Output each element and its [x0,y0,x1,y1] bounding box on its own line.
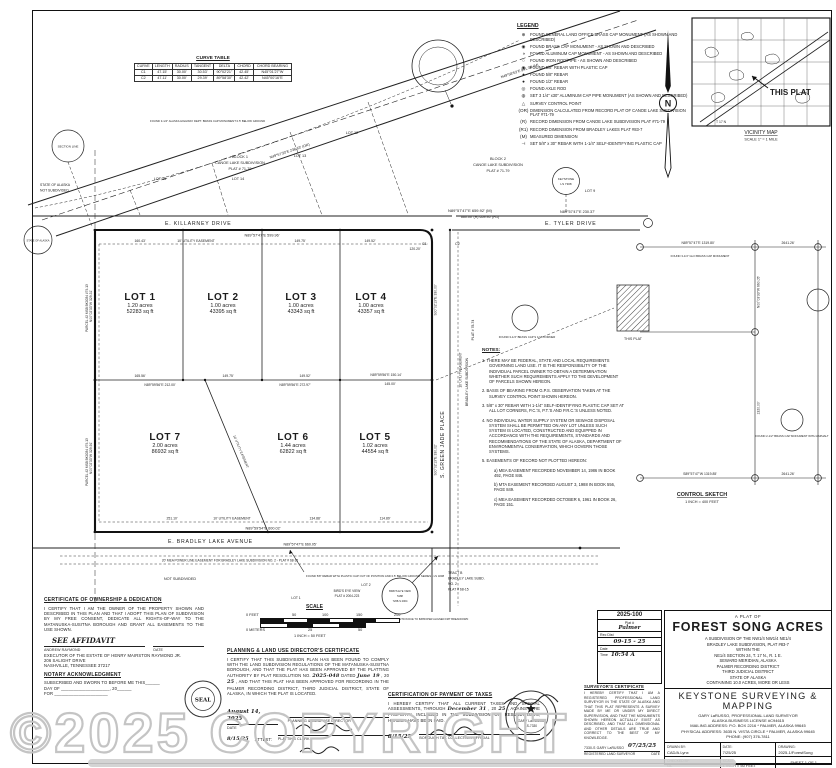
legend-item: ⊣SET 5/8" x 30" REBAR WITH 1-1/4" SELF-I… [517,142,691,147]
easement-top-label: 10' UTILITY EASEMENT [177,239,215,243]
keystone-cap-line2: LS 7308 [560,182,572,186]
control-d3: N00°03'33"W 660.05' [757,276,761,308]
block1-line3: PLAT # 71-79 [228,167,251,171]
dim-m4: N89°59'56"E 150.14' [370,373,402,377]
m-abbrev: (M) [517,135,530,140]
lot-number: LOT 4 [336,292,406,303]
hwy-monument-note: FOUND 3-1/4" ALASKA HIGHWAY DEPT. BRASS … [150,119,265,123]
legend-item: (M)MEASURED DIMENSION [517,135,691,140]
control-d4: S89°57'47"W 1319.85' [683,472,717,476]
curve-cell: 29.39' [191,75,214,81]
rebar58-icon: ● [517,73,530,78]
date-value: 7/25/25 [723,750,736,755]
lot-number: LOT 6 [258,432,328,443]
note-5b: b) MTA EASEMENT RECORDED AUGUST 3, 1988 … [482,482,624,492]
control-point-icon: △ [517,102,530,107]
recording-recdist-value: 09-15 - 25 [598,638,661,646]
ownership-certificate: CERTIFICATE OF OWNERSHIP & DEDICATION I … [44,597,204,697]
lot-3-label: LOT 3 1.00 acres 43343 sq ft [266,292,336,315]
section-line-label: SECTION LINE [58,145,79,149]
firm-name: KEYSTONE SURVEYING & MAPPING [667,691,829,711]
planning-body-4: , AND THAT THIS PLAT HAS BEEN APPROVED F… [227,679,389,696]
dim-b3: 114.89' [380,517,391,521]
legend-item: ●FOUND 1/2" REBAR [517,80,691,85]
legend: LEGEND ⊕FOUND GENERAL LAND OFFICE BRASS … [517,24,691,149]
brass-cap-icon: ◉ [517,45,530,50]
lot-sqft: 44554 sq ft [340,449,410,455]
easement-bottom-label: 10' UTILITY EASEMENT [213,517,251,521]
lot-sqft: 43343 sq ft [266,309,336,315]
legend-item-text: RECORD DIMENSION FROM CANOE LAKE SUBDIVI… [530,120,665,125]
curve-cell: 30.00' [172,75,191,81]
surveyor-certificate: SURVEYOR'S CERTIFICATE I HEREBY CERTIFY … [584,684,660,757]
legend-item-text: SET 3 1/4" x30" ALUMINUM CAP PIPE MONUME… [530,94,687,99]
street-tyler: E. TYLER DRIVE [545,221,596,227]
bradley-sub-vertical: BRADLEY LAKE SUBDIVISION [465,357,469,406]
birdseye-line1: BIRD'S EYE VIEW [334,589,361,593]
dim-m5: 145.00' [384,382,395,386]
axle-rod-icon: ◎ [517,87,530,92]
dim-m3: 149.52' [299,374,310,378]
title-block: A PLAT OF FOREST SONG ACRES A SUBDIVISIO… [664,610,832,765]
scale-feet-100: 100 [322,613,328,617]
note-5: 5. EASEMENTS OF RECORD NOT PLOTTED HEREO… [482,458,624,463]
dim-w2: 149.75' [294,239,305,243]
planning-approval-date: June 19 [357,673,380,679]
dim-m6: N89°59'56"E 212.00' [144,383,176,387]
legend-item-text: MEASURED DIMENSION [530,135,578,140]
dim-left2: N00°02'33"W 329.91' [89,442,93,474]
planning-resolution-no: 2025-048 [312,673,339,679]
planning-body-2: DATED [341,673,357,678]
drawing-label: DRAWING: [778,745,795,749]
lot15-label: LOT 15 [154,177,167,181]
ownership-body: I CERTIFY THAT I AM THE OWNER OF THE PRO… [44,606,204,633]
curve-cell: 47.11' [152,75,172,81]
vicinity-title: VICINITY MAP [744,130,778,136]
be-lot1-label: LOT 1 [291,596,300,600]
lot-7-label: LOT 7 2.00 acres 86932 sq ft [130,432,200,455]
control-m3: FOUND 3-1/4" BRASS CAP S 1/16 CORNER [499,335,556,339]
legend-item: ◎FOUND AXLE ROD [517,87,691,92]
rebar12-icon: ● [517,80,530,85]
scale-feet-200: 200 [394,613,400,617]
legend-item-text: FOUND BRASS CAP MONUMENT - AS SHOWN AND … [530,45,655,50]
drawn-by-label: DRAWN BY: [667,745,686,749]
scale-feet-150: 150 [356,613,362,617]
owner-date-label: DATE [153,648,163,652]
block1-line1: BLOCK 1 [232,155,248,159]
recording-box: 2025-100 Plat # Palmer Rec Dist 09-15 - … [597,610,662,684]
drawing-value: 2025-1/ForestSong [778,750,812,755]
dim-top-r: 660.00' (R) 659.95' (R1) [461,215,499,219]
note-4: 4. NO INDIVIDUAL WATER SUPPLY SYSTEM OR … [482,418,624,455]
state-not-subdivided: NOT SUBDIVIDED [40,189,69,193]
legend-item: (OR)DIMENSION CALCULATED FROM RECORD PLA… [517,109,691,118]
control-d6: 2641.26' [782,472,795,476]
legend-item-text: FOUND 5/8" REBAR WITH PLASTIC CAP [530,66,607,71]
curve-cell: 89°58'30" [214,75,235,81]
curve-table-title: CURVE TABLE [134,56,292,61]
legend-item-text: FOUND GENERAL LAND OFFICE BRASS CAP MONU… [530,33,691,42]
vicinity-this-plat: THIS PLAT [770,88,811,97]
be-circle-line2: 5188 [397,594,403,598]
set-rebar-icon: ⊣ [517,142,530,147]
legend-item-text: RECORD DIMENSION FROM BRADLEY LAKES PLAT… [530,128,642,133]
lot-sqft: 43357 sq ft [336,309,406,315]
vicinity-scale: SCALE 1" = 1 MILE [744,138,778,142]
control-title: CONTROL SKETCH [677,492,727,498]
be-lot2-label: LOT 2 [361,583,370,587]
lot-number: LOT 3 [266,292,336,303]
be-circle-line1: BIRD'S EYE VIEW [389,589,411,593]
monument-dot [450,104,453,107]
legend-title: LEGEND [517,24,691,30]
surveyor-reg-no: 7330-S GARY LaRUSSO [584,746,624,750]
legend-item: ⊕FOUND GENERAL LAND OFFICE BRASS CAP MON… [517,33,691,42]
curve-c2-label: C2 [455,242,460,246]
glo-brass-cap-icon: ⊕ [517,33,530,42]
surveyor-title: SURVEYOR'S CERTIFICATE [584,684,660,689]
planning-approval-year: 25 [227,679,234,685]
legend-item-text: FOUND AXLE ROD [530,87,566,92]
note-5a: a) MEA EASEMENT RECORDED NOVEMBER 14, 19… [482,468,624,478]
owner-name: ANDREW RAYMOND [44,648,80,652]
dim-b1: 251.10' [166,517,177,521]
block2-line1: BLOCK 2 [490,157,506,161]
ownership-affidavit-note: SEE AFFIDAVIT [52,636,204,645]
lot-number: LOT 1 [105,292,175,303]
block2-line3: PLAT # 71-79 [486,169,509,173]
surveyor-body: I HEREBY CERTIFY THAT I AM A REGISTERED … [584,691,660,740]
r-abbrev: (R) [517,120,530,125]
dim-m7: N89°59'56"E 272.97' [279,383,311,387]
dim-right1: S00°02'13"E 330.00' [434,284,438,315]
rebar-cap-icon: ◉ [517,66,530,71]
r1-abbrev: (R1) [517,128,530,133]
lot-1-label: LOT 1 1.20 acres 52283 sq ft [105,292,175,315]
curve-cell: C2 [135,75,153,81]
control-d5: 1320.00' [757,401,761,414]
surveyor-signed-date: 07/25/25 [628,743,656,750]
plat-subtitle: CONTAINING 10.0 ACRES, MORE OR LESS [667,680,829,686]
legend-item-text: FOUND 5/8" REBAR [530,73,568,78]
tract-b-line1: TRACT B [448,571,463,575]
dim-ave: N89°57'47"E 660.05' [283,543,316,547]
copyright-watermark: ©2025 COPYRIGHT [10,700,569,765]
tract-b-line2: BRADLEY LAKE SUBD. [448,577,485,581]
curve-table: CURVE TABLE CURVE LENGTH RADIUS TANGENT … [134,56,292,82]
planning-title: PLANNING & LAND USE DIRECTOR'S CERTIFICA… [227,648,389,655]
note-2: 2. BASIS OF BEARING FROM G.P.S. OBSERVAT… [482,388,624,398]
lot-6-label: LOT 6 1.44 acres 62822 sq ft [258,432,328,455]
note-3: 3. 5/8" x 30" REBAR WITH 1-1/4" SELF-IDE… [482,403,624,413]
lot-4-label: LOT 4 1.00 acres 43357 sq ft [336,292,406,315]
control-scale: 1 INCH = 400 FEET [685,500,720,504]
lot-number: LOT 2 [188,292,258,303]
lot-sqft: 86932 sq ft [130,449,200,455]
dim-tyler: N89°57'47"E 230.37' [560,210,595,214]
alaska-circle-label: STATE OF ALASKA [27,239,50,243]
dim-killarney: N89°57'47"E 599.96' [245,234,280,238]
vicinity-map: THIS PLAT T 17 N VICINITY MAP SCALE 1" =… [692,18,830,142]
curve-cell: 42.42' [235,75,253,81]
drawn-by-value: CAD/A.Lynx [667,750,689,755]
dim-left1: N00°02'33"W 329.31' [89,290,93,322]
recording-time-value: 10:54 A [611,652,635,658]
date-label: DATE: [723,745,733,749]
scale-feet-50: 50 [292,613,296,617]
legend-item: ●FOUND 5/8" REBAR [517,73,691,78]
curve-cell: N45°00'16"E [253,75,291,81]
control-this-plat-label: THIS PLAT [624,337,643,341]
legend-item: ◉FOUND BRASS CAP MONUMENT - AS SHOWN AND… [517,45,691,50]
legend-item: △SURVEY CONTROL POINT [517,102,691,107]
control-d1: N89°57'47"E 1319.80' [681,241,714,245]
surveyor-reg-label: REGISTERED LAND SURVEYOR [584,752,635,756]
legend-item: ◉FOUND 5/8" REBAR WITH PLASTIC CAP [517,66,691,71]
note-1: 1. THERE MAY BE FEDERAL, STATE AND LOCAL… [482,358,624,384]
tract-b-line3: NO. 2 [448,582,457,586]
keystone-cap-line1: KEYSTONE [558,177,574,181]
be-circle-line3: 7268-S 2004 [393,599,408,603]
recording-plat-value: Palmer [598,625,661,631]
iron-rod-icon: ○ [517,59,530,64]
scale-caption: 1 INCH = 50 FEET [294,634,326,638]
control-d2: 2641.26' [782,241,795,245]
scale-feet-0: 0 FEET [246,613,259,617]
lot-sqft: 62822 sq ft [258,449,328,455]
notes-title: NOTES: [482,348,624,354]
highway-monument-circle [412,40,464,92]
set-pipe-monument-icon: ◍ [517,94,530,99]
legend-item-text: FOUND IRON ROD/PIPE - AS SHOWN AND DESCR… [530,59,637,64]
tract-b-line4: PLAT # 68-15 [448,588,469,592]
scale-meters-25: 25 [308,628,312,632]
firm-line: PHONE: (907) 376-7811 [667,734,829,739]
dim-b2: 134.88' [309,517,320,521]
legend-item-text: SET 5/8" x 30" REBAR WITH 1-1/4" SELF-ID… [530,142,662,147]
power-easement-label: 20' MEA POWER LINE EASEMENT FOR BRADLEY … [162,559,298,563]
dim-right2: S00°02'13"E 330.02' [434,444,438,475]
birdseye-line2: PLAT # 2004-223 [335,594,360,598]
plat-name: FOREST SONG ACRES [667,620,829,634]
scale-meters-50: 50 [358,628,362,632]
title-block-firm-section: KEYSTONE SURVEYING & MAPPING GARY LaRUSS… [665,689,831,743]
notes-section: NOTES: 1. THERE MAY BE FEDERAL, STATE AN… [482,348,624,511]
control-this-plat-box [617,285,649,331]
curve-row-c2: C2 47.11' 30.00' 29.39' 89°58'30" 42.42'… [135,75,292,81]
street-green-jade: S. GREEN JADE PLACE [440,411,446,478]
lot-sqft: 52283 sq ft [105,309,175,315]
recording-time-label: Time [598,653,608,657]
scale-bar: SCALE 0 FEET 50 100 150 200 0 METERS 25 … [246,604,412,640]
legend-item-text: FOUND ALUMINUM CAP MONUMENT - AS SHOWN A… [530,52,662,57]
dim-top: N89°57'47"E 659.92' (M) [448,208,493,213]
easement-right-vertical: 10' UTILITY EASEMENT [459,352,463,387]
lot-5-label: LOT 5 1.02 acres 44554 sq ft [340,432,410,455]
not-subdivided-label: NOT SUBDIVIDED [164,577,196,581]
lot12-label: LOT 12 [346,131,359,135]
keystone-cap-circle [553,168,580,195]
dim-m2: 149.75' [222,374,233,378]
notary-line3: FOR ______________________ [44,691,204,696]
planning-body: I CERTIFY THAT THIS SUBDIVISION PLAN HAS… [227,657,389,697]
legend-item: (R1)RECORD DIMENSION FROM BRADLEY LAKES … [517,128,691,133]
control-m1: FOUND 3-1/4" GLO BRASS CAP MONUMENT [671,254,730,258]
lot14-label: LOT 14 [232,177,245,181]
bradley-plat-vertical: PLAT # 78-74 [471,320,475,341]
parcel1-label: PARCEL #2 MSB BK0034 #79-13 [85,284,89,332]
scale-meters-0: 0 METERS [246,628,265,632]
dim-w4: 120.20' [409,247,420,251]
tyler-end-monument [644,219,653,228]
lot-lines [95,230,432,532]
dim-bottom: N89°59'54"E 600.02' [246,527,281,531]
legend-item: (R)RECORD DIMENSION FROM CANOE LAKE SUBD… [517,120,691,125]
block2-line2: CANOE LAKE SUBDIVISION [473,163,523,167]
curve-c1-label: C1 [422,242,427,246]
or-abbrev: (OR) [517,109,530,118]
scale-bar-meters [260,623,366,628]
birdseye-leader [412,556,438,583]
ownership-title: CERTIFICATE OF OWNERSHIP & DEDICATION [44,597,204,604]
found-rebar-note: FOUND 5/8" REBAR WITH PLASTIC CAP OUT OF… [306,574,444,578]
lot13-label: LOT 13 [294,154,307,158]
title-block-name-section: A PLAT OF FOREST SONG ACRES A SUBDIVISIO… [665,611,831,689]
surveyor-date-label: DATE [651,752,660,756]
scale-bar-title: SCALE [306,604,323,610]
lot-sqft: 43395 sq ft [188,309,258,315]
notary-title: NOTARY ACKNOWLEDGMENT [44,672,204,679]
dim-w1: 160.43' [134,239,145,243]
lot9-label: LOT 9 [585,189,595,193]
lot-2-label: LOT 2 1.00 acres 43395 sq ft [188,292,258,315]
legend-item: ◑FOUND ALUMINUM CAP MONUMENT - AS SHOWN … [517,52,691,57]
a-plat-of: A PLAT OF [667,614,829,619]
taxes-title: CERTIFICATION OF PAYMENT OF TAXES [388,692,540,699]
aluminum-cap-icon: ◑ [517,52,530,57]
subdivision-boundary [95,230,432,532]
note-5c: c) MEA EASEMENT RECORDED OCTOBER 6, 1961… [482,497,624,507]
dim-w3: 149.52' [364,239,375,243]
street-killarney: E. KILLARNEY DRIVE [165,221,232,227]
legend-item-text: DIMENSION CALCULATED FROM RECORD PLAT OF… [530,109,691,118]
block1-line2: CANOE LAKE SUBDIVISION [215,161,265,165]
planning-body-3: , 20 [381,673,389,678]
legend-item-text: FOUND 1/2" REBAR [530,80,568,85]
sheet-value: SHEET 1 OF 1 [790,760,817,765]
legend-item: ◍SET 3 1/4" x30" ALUMINUM CAP PIPE MONUM… [517,94,691,99]
vicinity-township: T 17 N [716,120,727,124]
lot-number: LOT 5 [340,432,410,443]
parcel2-label: PARCEL #2 MSB BK0034 #79-13 [85,438,89,486]
legend-item-text: SURVEY CONTROL POINT [530,102,581,107]
dim-m1: 165.56' [134,374,145,378]
state-of-alaska: STATE OF ALASKA [40,183,71,187]
recording-number: 2025-100 [598,611,661,620]
plat-sheet: N [0,0,836,768]
control-m2: FOUND 2-1/2" BRASS CAP MONUMENT WITH ASP… [755,434,828,438]
street-bradley: E. BRADLEY LAKE AVENUE [168,539,253,545]
lot-number: LOT 7 [130,432,200,443]
legend-item: ○FOUND IRON ROD/PIPE - AS SHOWN AND DESC… [517,59,691,64]
